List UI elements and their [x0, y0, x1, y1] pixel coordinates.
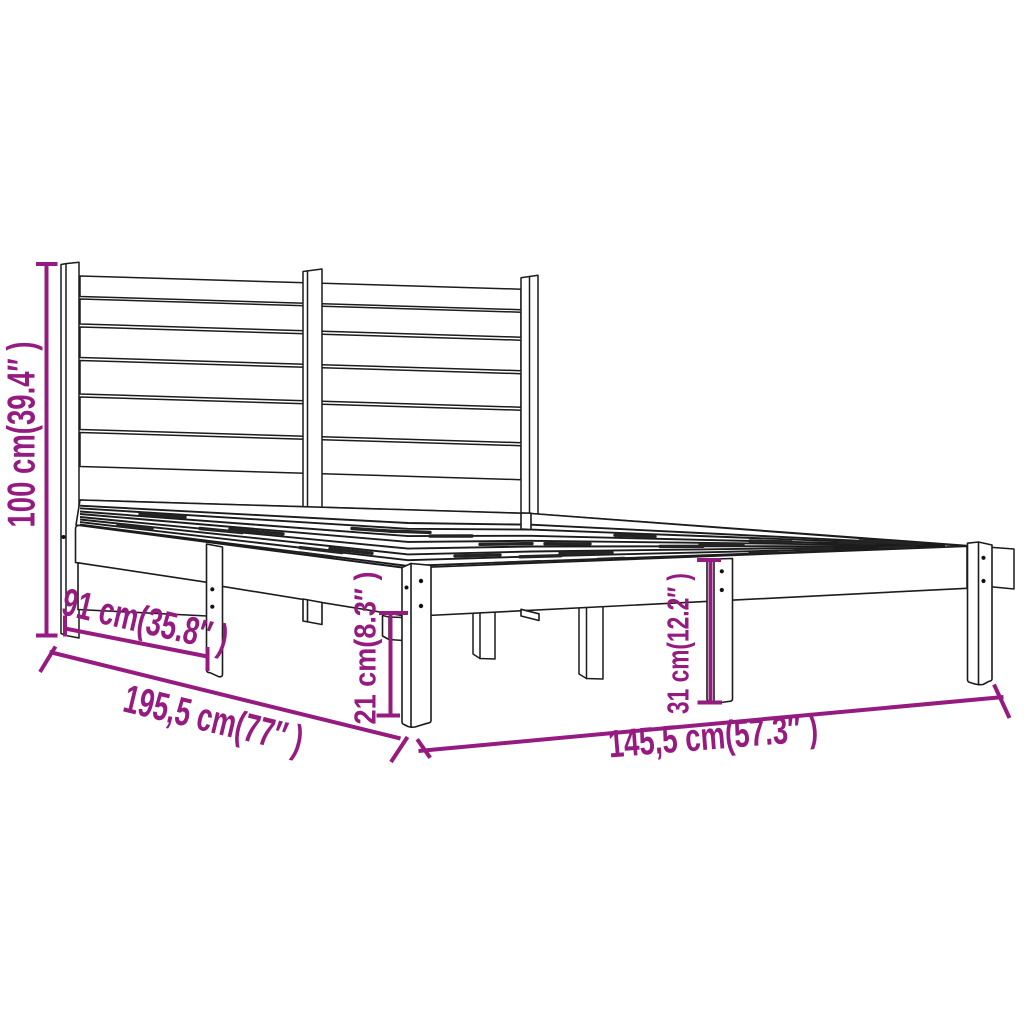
svg-text:100 cm(39.4″ ): 100 cm(39.4″ )	[1, 342, 44, 528]
svg-text:21 cm(8.3″ ): 21 cm(8.3″ )	[349, 572, 383, 725]
svg-text:31 cm(12.2″ ): 31 cm(12.2″ )	[661, 573, 696, 714]
